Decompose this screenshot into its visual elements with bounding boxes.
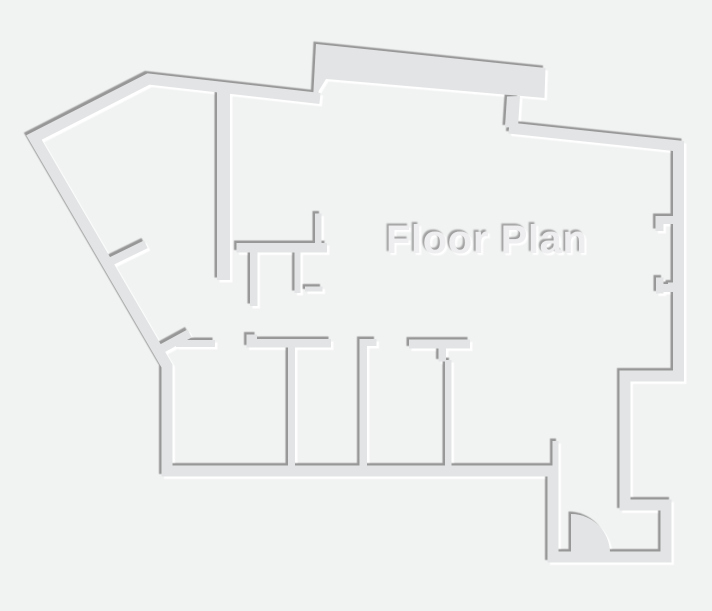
svg-text:Floor Plan: Floor Plan xyxy=(386,218,588,262)
